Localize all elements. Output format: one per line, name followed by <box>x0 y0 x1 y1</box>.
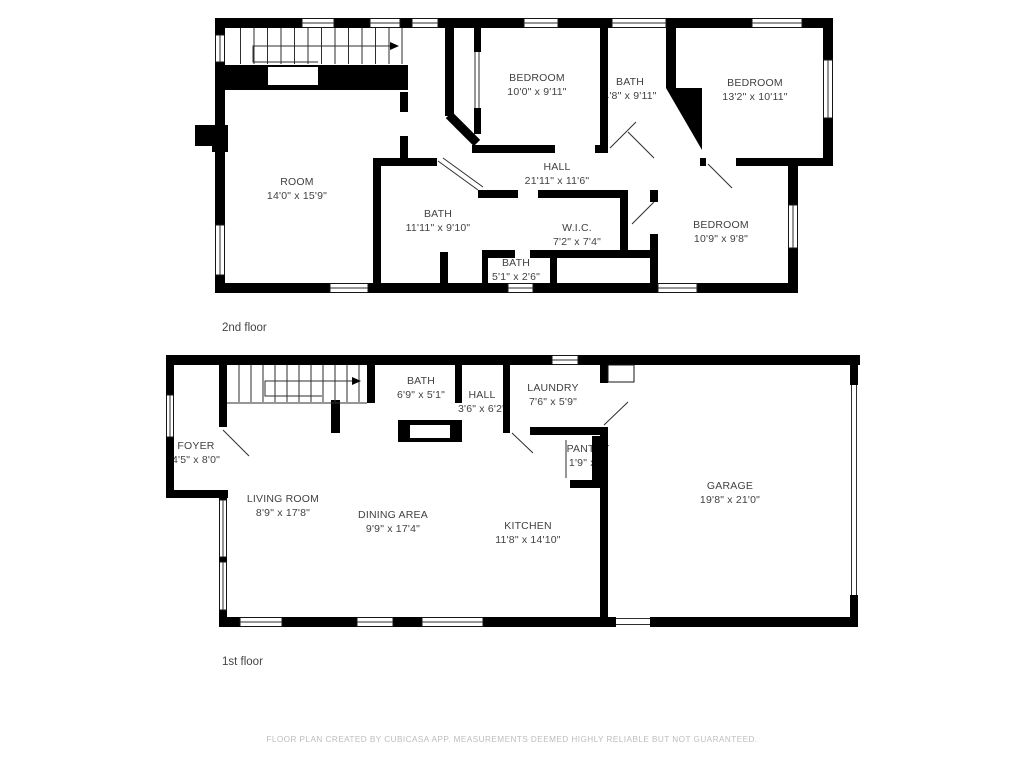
room-dims: 1'9" x 2' <box>567 457 610 471</box>
room-name: HALL <box>458 389 506 403</box>
floor2-room-label-bath-b: BATH 11'11" x 9'10" <box>406 208 471 235</box>
room-dims: 5'1" x 2'6" <box>492 271 540 285</box>
room-name: LIVING ROOM <box>247 493 319 507</box>
floor2-windows <box>216 19 833 293</box>
room-dims: 8'9" x 17'8" <box>247 507 319 521</box>
floor1-room-label-pantry: PANTRY 1'9" x 2' <box>567 443 610 470</box>
floor2-room-label-bedroom-c: BEDROOM 10'9" x 9'8" <box>693 219 749 246</box>
floor1-room-label-bath: BATH 6'9" x 5'1" <box>397 375 445 402</box>
room-dims: 4'5" x 8'0" <box>172 454 220 468</box>
room-dims: 6'9" x 5'1" <box>397 389 445 403</box>
floor2-doors <box>438 52 732 224</box>
floor2-room-label-bath-c: BATH 5'1" x 2'6" <box>492 257 540 284</box>
floor2-room-label-bath-a: BATH 4'8" x 9'11" <box>603 76 656 103</box>
room-dims: 11'8" x 14'10" <box>495 534 560 548</box>
floor2-room-label-hall: HALL 21'11" x 11'6" <box>525 161 590 188</box>
room-dims: 13'2" x 10'11" <box>722 91 787 105</box>
floorplan-page: BEDROOM 10'0" x 9'11" BATH 4'8" x 9'11" … <box>0 0 1024 768</box>
floor1-room-label-living-room: LIVING ROOM 8'9" x 17'8" <box>247 493 319 520</box>
stairs-direction-arrow-icon <box>390 42 399 50</box>
floor2-room-label-wic: W.I.C. 7'2" x 7'4" <box>553 222 601 249</box>
room-name: BEDROOM <box>507 72 566 86</box>
room-dims: 11'11" x 9'10" <box>406 222 471 236</box>
room-dims: 4'8" x 9'11" <box>603 90 656 104</box>
room-dims: 3'6" x 6'2" <box>458 403 506 417</box>
floor1-room-label-dining-area: DINING AREA 9'9" x 17'4" <box>358 509 428 536</box>
footer-disclaimer: FLOOR PLAN CREATED BY CUBICASA APP. MEAS… <box>0 735 1024 744</box>
floor1-windows <box>167 356 579 627</box>
room-name: BATH <box>492 257 540 271</box>
floor1-room-label-garage: GARAGE 19'8" x 21'0" <box>700 480 760 507</box>
room-name: FOYER <box>172 440 220 454</box>
floor2-room-label-room: ROOM 14'0" x 15'9" <box>267 176 327 203</box>
room-name: BEDROOM <box>693 219 749 233</box>
room-dims: 19'8" x 21'0" <box>700 494 760 508</box>
room-name: BATH <box>406 208 471 222</box>
room-dims: 21'11" x 11'6" <box>525 175 590 189</box>
room-name: BATH <box>603 76 656 90</box>
room-name: BEDROOM <box>722 77 787 91</box>
floor2-room-label-bedroom-b: BEDROOM 13'2" x 10'11" <box>722 77 787 104</box>
floor2-room-label-bedroom-a: BEDROOM 10'0" x 9'11" <box>507 72 566 99</box>
floorplan-drawing <box>0 0 1024 768</box>
floor2-walls <box>195 18 833 293</box>
floor2-label: 2nd floor <box>222 322 267 334</box>
floor1-stairs <box>227 365 367 403</box>
room-dims: 14'0" x 15'9" <box>267 190 327 204</box>
room-name: BATH <box>397 375 445 389</box>
room-dims: 9'9" x 17'4" <box>358 523 428 537</box>
room-name: GARAGE <box>700 480 760 494</box>
room-dims: 10'0" x 9'11" <box>507 86 566 100</box>
room-dims: 10'9" x 9'8" <box>693 233 749 247</box>
room-name: PANTRY <box>567 443 610 457</box>
room-name: ROOM <box>267 176 327 190</box>
room-name: W.I.C. <box>553 222 601 236</box>
room-name: HALL <box>525 161 590 175</box>
stairs-direction-arrow-icon <box>352 377 361 385</box>
room-name: LAUNDRY <box>527 382 578 396</box>
floor1-room-label-hall: HALL 3'6" x 6'2" <box>458 389 506 416</box>
floor2-stairs <box>241 28 403 64</box>
room-name: KITCHEN <box>495 520 560 534</box>
room-name: DINING AREA <box>358 509 428 523</box>
room-dims: 7'2" x 7'4" <box>553 236 601 250</box>
floor1-label: 1st floor <box>222 656 263 668</box>
floor1-room-label-laundry: LAUNDRY 7'6" x 5'9" <box>527 382 578 409</box>
room-dims: 7'6" x 5'9" <box>527 396 578 410</box>
floor1-room-label-kitchen: KITCHEN 11'8" x 14'10" <box>495 520 560 547</box>
floor1-room-label-foyer: FOYER 4'5" x 8'0" <box>172 440 220 467</box>
